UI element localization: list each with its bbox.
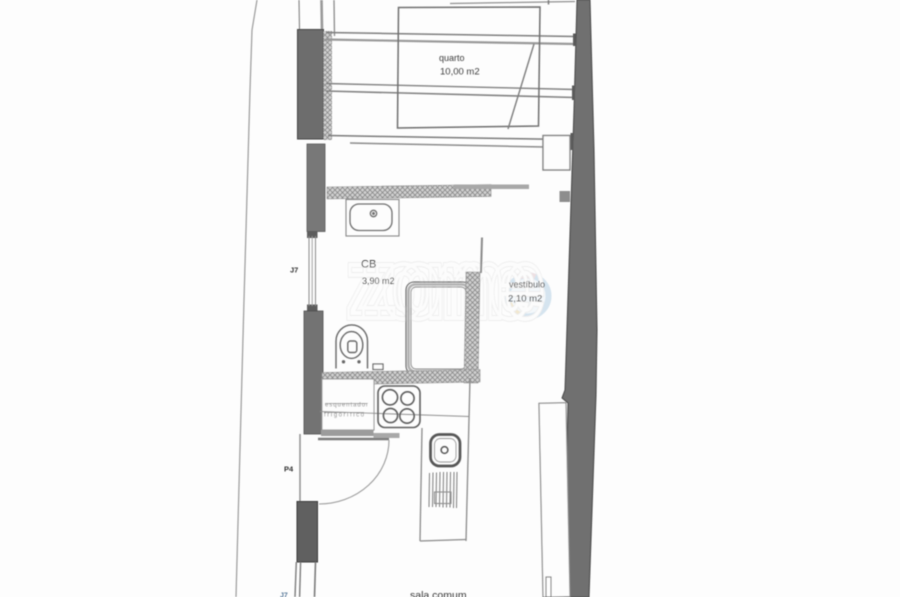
svg-text:10,00 m2: 10,00 m2: [440, 67, 480, 78]
svg-text:P4: P4: [284, 465, 294, 474]
svg-text:vestíbulo: vestíbulo: [509, 280, 545, 290]
svg-text:3,90 m2: 3,90 m2: [362, 276, 395, 286]
svg-text:2,10 m2: 2,10 m2: [508, 294, 542, 305]
svg-text:sala comum: sala comum: [410, 590, 467, 597]
svg-text:CB: CB: [361, 259, 376, 271]
svg-text:quarto: quarto: [439, 53, 465, 63]
svg-text:frigorifico: frigorifico: [324, 413, 365, 419]
svg-text:J7: J7: [280, 593, 288, 597]
svg-text:J7: J7: [290, 266, 298, 275]
